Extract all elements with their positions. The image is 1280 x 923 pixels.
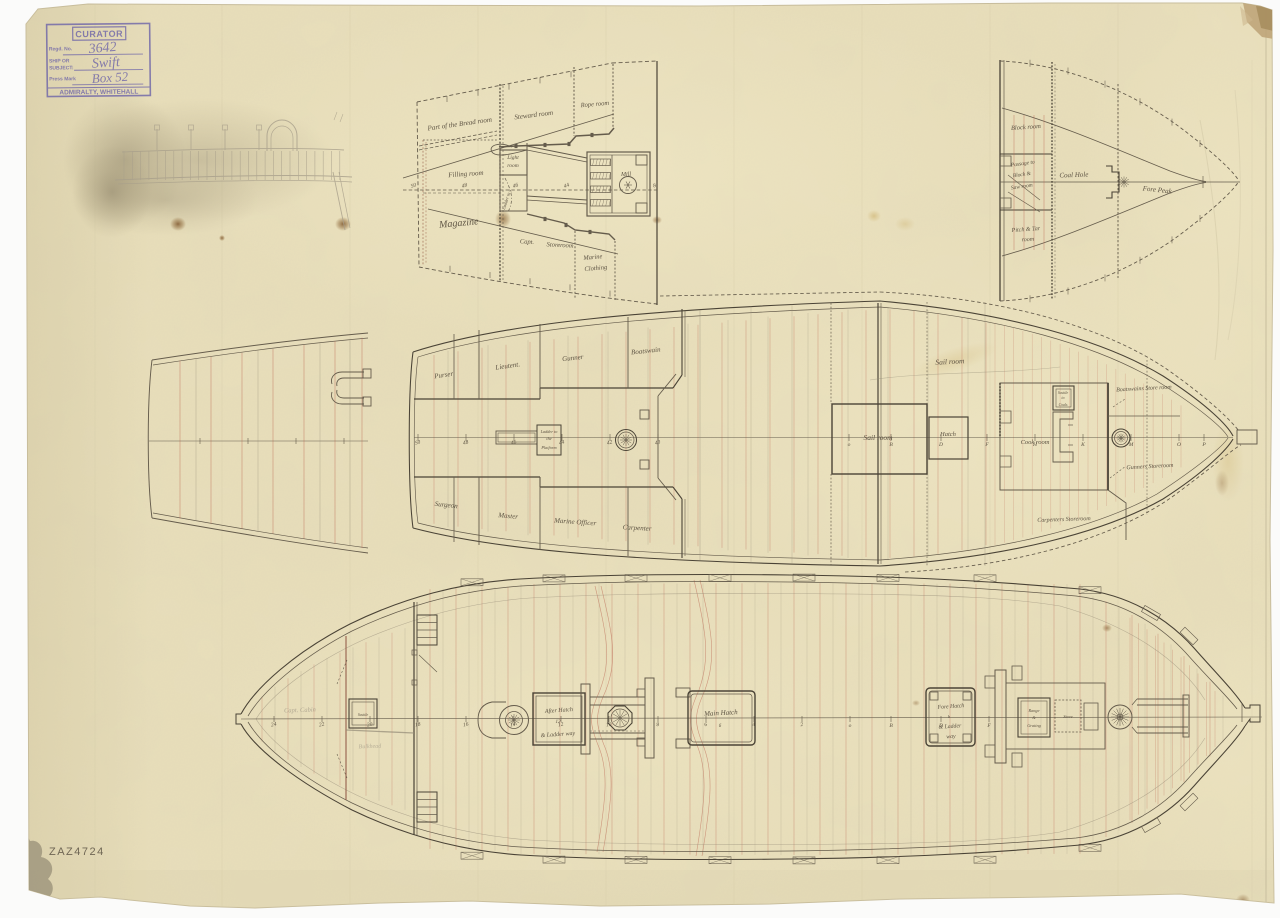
svg-text:Hatch: Hatch (939, 431, 956, 438)
svg-text:Platform: Platform (540, 445, 556, 450)
svg-text:SUBJECT:: SUBJECT: (49, 65, 74, 71)
svg-text:Light: Light (506, 155, 519, 161)
svg-text:Stove: Stove (1063, 714, 1072, 719)
svg-text:Coal Hole: Coal Hole (1059, 170, 1088, 179)
svg-text:Scuttle: Scuttle (358, 713, 369, 717)
svg-text:CURATOR: CURATOR (75, 29, 123, 39)
svg-text:ADMIRALTY, WHITEHALL: ADMIRALTY, WHITEHALL (59, 89, 138, 97)
svg-text:F: F (986, 723, 991, 729)
svg-text:Bulkhead: Bulkhead (359, 744, 383, 751)
svg-text:Press Mark: Press Mark (49, 76, 76, 82)
svg-text:the: the (546, 436, 551, 441)
svg-text:ZAZ4724: ZAZ4724 (49, 846, 105, 858)
svg-text:Grating: Grating (1027, 723, 1041, 728)
svg-text:o: o (849, 723, 852, 729)
svg-text:way: way (946, 734, 956, 741)
svg-text:Sail room: Sail room (935, 356, 965, 367)
svg-text:Capt.: Capt. (520, 238, 535, 246)
svg-text:room: room (507, 163, 518, 169)
svg-text:Range: Range (1028, 708, 1040, 713)
svg-text:Regd. No.: Regd. No. (49, 46, 73, 52)
svg-text:P: P (1201, 442, 1206, 448)
svg-text:Ladder to: Ladder to (540, 429, 559, 434)
svg-text:Mill: Mill (620, 172, 631, 178)
svg-text:O: O (1177, 442, 1181, 448)
svg-text:Capt. Cabin: Capt. Cabin (284, 706, 316, 714)
svg-text:Storeroom: Storeroom (546, 241, 574, 249)
svg-text:Sail room: Sail room (863, 433, 893, 442)
svg-text:Box 52: Box 52 (91, 69, 129, 86)
svg-text:D: D (938, 442, 943, 448)
svg-text:K: K (1080, 442, 1085, 448)
svg-text:o: o (848, 442, 851, 448)
svg-text:Coals: Coals (1059, 403, 1068, 407)
svg-text:SHIP OR: SHIP OR (49, 58, 70, 64)
svg-text:Carpenter: Carpenter (623, 523, 652, 533)
svg-text:room: room (1022, 237, 1035, 244)
svg-text:Cook room: Cook room (1021, 439, 1050, 446)
svg-text:Scuttle: Scuttle (1058, 391, 1069, 395)
svg-text:12: 12 (556, 720, 562, 725)
svg-text:to: to (1062, 396, 1065, 400)
